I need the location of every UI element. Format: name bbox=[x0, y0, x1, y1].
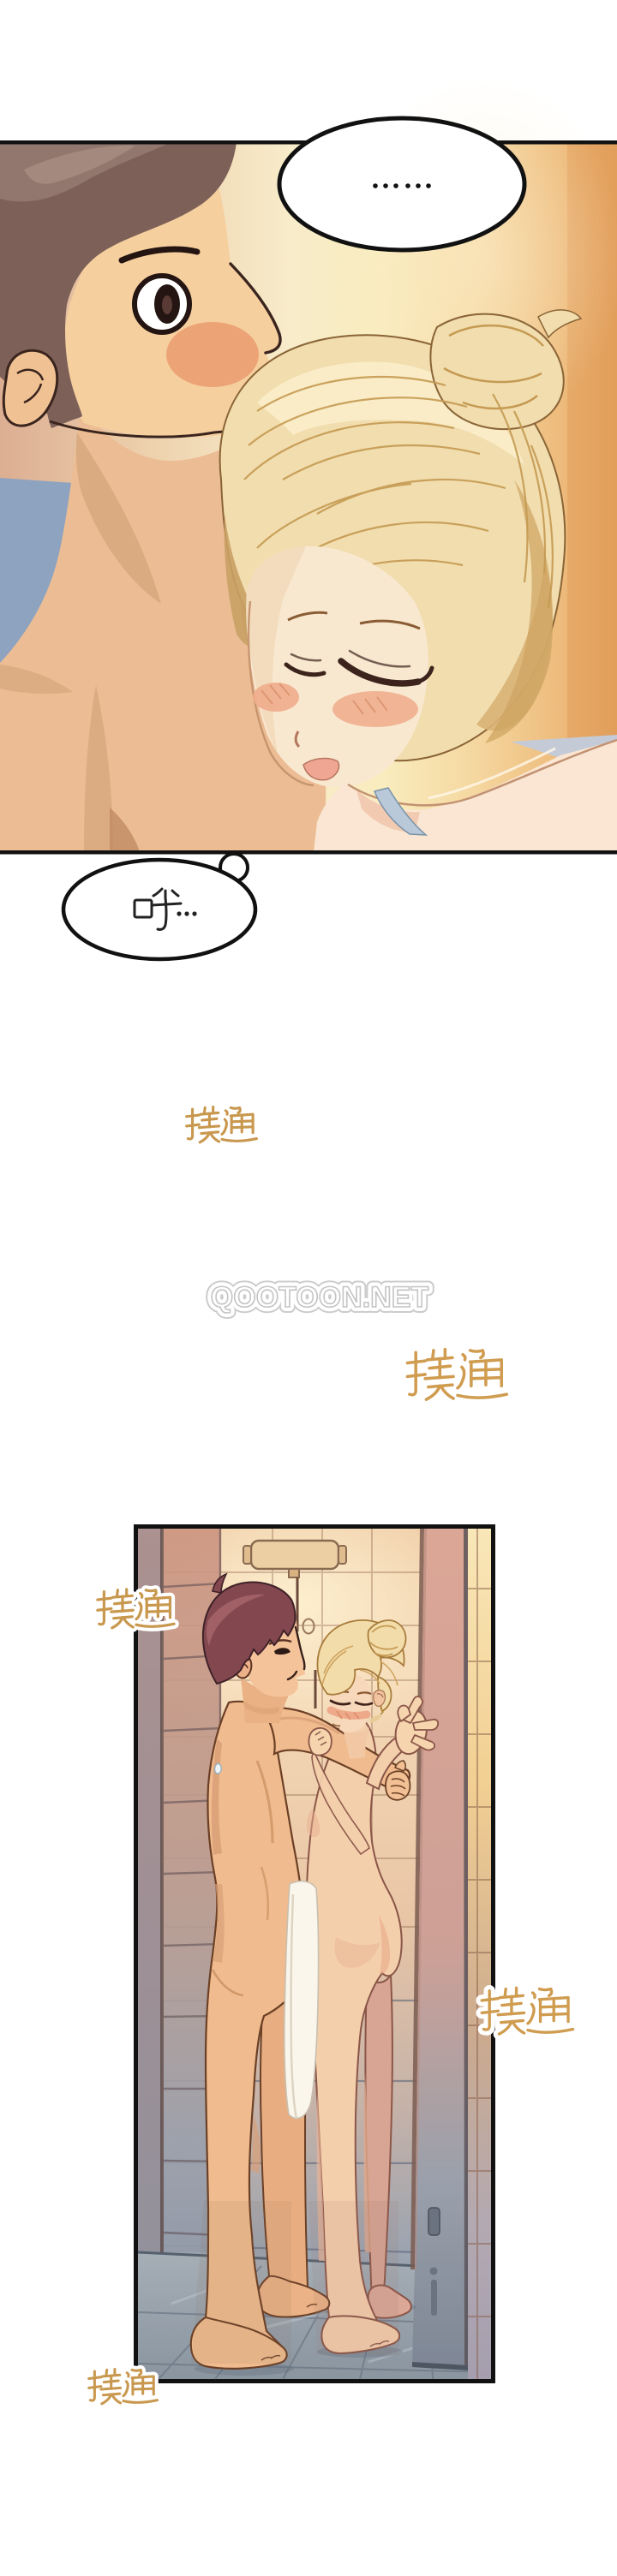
svg-text:QOOTOON.NET: QOOTOON.NET bbox=[211, 1281, 429, 1314]
